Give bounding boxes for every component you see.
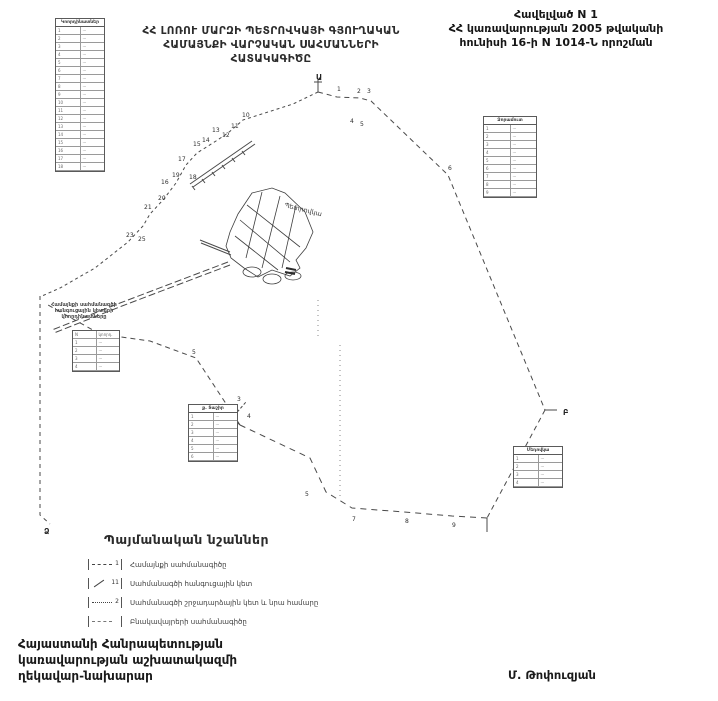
mini-table-row: 6··· bbox=[484, 165, 536, 173]
mini-table-cell: ··· bbox=[539, 471, 563, 478]
mini-table-cell: 18 bbox=[56, 163, 81, 170]
junction-letter: Բ bbox=[563, 408, 568, 417]
mini-table-cell: ··· bbox=[97, 347, 120, 354]
mini-table-cell: ··· bbox=[81, 131, 105, 138]
mini-table-cell: ··· bbox=[81, 59, 105, 66]
mini-table-row: 8··· bbox=[484, 181, 536, 189]
mini-table-cell: 3 bbox=[73, 355, 97, 362]
mini-table-cell: 3 bbox=[189, 429, 214, 436]
mini-table-row: 2··· bbox=[189, 421, 237, 429]
mini-table-row: 3··· bbox=[189, 429, 237, 437]
footer-line1: Հայաստանի Հանրապետության bbox=[18, 636, 237, 652]
mini-table-row: 1··· bbox=[56, 27, 104, 35]
mini-table-cell: 14 bbox=[56, 131, 81, 138]
mini-table-cell: 4 bbox=[189, 437, 214, 444]
coordinates-table-tashir: ք. Տաշիր1···2···3···4···5···6··· bbox=[188, 404, 238, 462]
mini-table-cell: 7 bbox=[484, 173, 511, 180]
mini-table-row: 4··· bbox=[514, 479, 562, 487]
legend-item: Բնակավայրերի սահմանագիծը bbox=[88, 615, 247, 628]
mini-table-cell: ··· bbox=[97, 355, 120, 362]
mini-table-cell: ··· bbox=[81, 83, 105, 90]
mini-table-row: 5··· bbox=[484, 157, 536, 165]
mini-table-cell: ··· bbox=[81, 123, 105, 130]
mini-table-cell: ··· bbox=[511, 165, 537, 172]
caption-line3: կոորդինատները bbox=[42, 314, 126, 320]
settlement-area bbox=[226, 188, 313, 284]
mini-table-row: 7··· bbox=[484, 173, 536, 181]
junction-letter: Ա bbox=[316, 73, 322, 82]
legend-item: 11Սահմանագծի հանգուցային կետ bbox=[88, 577, 252, 590]
mini-table-cell: 5 bbox=[189, 445, 214, 452]
mini-table-cell: ··· bbox=[81, 91, 105, 98]
signature: Մ. Թոփուզյան bbox=[508, 668, 596, 682]
mini-table-cell: 2 bbox=[56, 35, 81, 42]
mini-table-row: 6··· bbox=[56, 67, 104, 75]
boundary-point-number: 21 bbox=[144, 204, 152, 211]
boundary-point-number: 19 bbox=[172, 172, 180, 179]
mini-table-cell: 5 bbox=[484, 157, 511, 164]
mini-table-cell: ··· bbox=[539, 455, 563, 462]
mini-table-row: 1··· bbox=[73, 339, 119, 347]
mini-table-row: 17··· bbox=[56, 155, 104, 163]
mini-table-cell: 3 bbox=[484, 141, 511, 148]
mini-table-row: 14··· bbox=[56, 131, 104, 139]
mini-table-cell: 1 bbox=[56, 27, 81, 34]
boundary-point-number: 15 bbox=[193, 141, 201, 148]
boundary-point-number: 16 bbox=[161, 179, 169, 186]
boundary-point-number: 3 bbox=[367, 88, 371, 95]
mini-table-cell: ··· bbox=[511, 189, 537, 196]
boundary-point-number: 1 bbox=[337, 86, 341, 93]
mini-table-row: 4··· bbox=[484, 149, 536, 157]
mini-table-cell: 11 bbox=[56, 107, 81, 114]
mini-table-row: 1··· bbox=[484, 125, 536, 133]
mini-table-cell: ··· bbox=[511, 181, 537, 188]
scanned-map-page: 1234567895101112131415171819162021232523… bbox=[0, 0, 718, 701]
mini-table-cell: ··· bbox=[81, 147, 105, 154]
mini-table-title: Կոորդինատներ bbox=[56, 19, 104, 27]
junction-letter: Ձ bbox=[44, 527, 49, 536]
coordinates-caption: Համայնքի սահմանագծի հանգուցային կետերի կ… bbox=[42, 302, 126, 320]
mini-table-cell: ··· bbox=[511, 133, 537, 140]
mini-table-cell: ··· bbox=[81, 43, 105, 50]
legend-item-label: Սահմանագծի հանգուցային կետ bbox=[130, 580, 252, 588]
mini-table-cell: ··· bbox=[511, 141, 537, 148]
mini-table-cell: 7 bbox=[56, 75, 81, 82]
legend-symbol-icon: 2 bbox=[88, 597, 122, 608]
boundary-point-number: 6 bbox=[448, 165, 452, 172]
boundary-point-number: 5 bbox=[305, 491, 309, 498]
page-title: ՀՀ ԼՈՌՈՒ ՄԱՐԶԻ ՊԵՏՐՈՎԿԱՅԻ ԳՅՈՒՂԱԿԱՆ ՀԱՄԱ… bbox=[118, 24, 424, 66]
mini-table-row: 4··· bbox=[56, 51, 104, 59]
mini-table-cell: 2 bbox=[514, 463, 539, 470]
mini-table-cell: 13 bbox=[56, 123, 81, 130]
mini-table-cell: 16 bbox=[56, 147, 81, 154]
appendix-line1: Հավելված N 1 bbox=[398, 8, 714, 22]
mini-table-cell: ··· bbox=[81, 67, 105, 74]
signer-block: Հայաստանի Հանրապետության կառավարության ա… bbox=[18, 636, 237, 684]
legend-title: Պայմանական նշաններ bbox=[104, 532, 269, 547]
mini-table-cell: 4 bbox=[73, 363, 97, 370]
mini-table-cell: ··· bbox=[511, 157, 537, 164]
mini-table-cell: ··· bbox=[81, 163, 105, 170]
mini-table-row: 9··· bbox=[56, 91, 104, 99]
boundary-point-number: 2 bbox=[357, 88, 361, 95]
mini-table-row: 7··· bbox=[56, 75, 104, 83]
mini-table-row: 16··· bbox=[56, 147, 104, 155]
mini-table-cell: ··· bbox=[511, 173, 537, 180]
mini-table-row: 4··· bbox=[189, 437, 237, 445]
legend-item: 1Համայնքի սահմանագիծը bbox=[88, 558, 227, 571]
mini-table-title: Մեդովկա bbox=[514, 447, 562, 455]
mini-table-row: 3··· bbox=[514, 471, 562, 479]
mini-table-cell: 1 bbox=[73, 339, 97, 346]
boundary-point-number: 8 bbox=[405, 518, 409, 525]
mini-table-cell: 4 bbox=[484, 149, 511, 156]
mini-table-cell: 3 bbox=[56, 43, 81, 50]
boundary-point-number: 3 bbox=[237, 396, 241, 403]
mini-table-cell: ··· bbox=[81, 75, 105, 82]
boundary-point-number: 5 bbox=[360, 121, 364, 128]
boundary-point-number: 9 bbox=[452, 522, 456, 529]
mini-table-row: Nկոորդ. bbox=[73, 331, 119, 339]
boundary-point-number: 12 bbox=[222, 132, 230, 139]
mini-table-cell: 1 bbox=[189, 413, 214, 420]
mini-table-row: 18··· bbox=[56, 163, 104, 171]
mini-table-cell: ··· bbox=[214, 429, 238, 436]
legend-symbol-icon: 11 bbox=[88, 578, 122, 589]
mini-table-cell: ··· bbox=[97, 363, 120, 370]
mini-table-row: 4··· bbox=[73, 363, 119, 371]
mini-table-title: ք. Տաշիր bbox=[189, 405, 237, 413]
appendix-note: Հավելված N 1 ՀՀ կառավարության 2005 թվակա… bbox=[398, 8, 714, 50]
settlement-label: Պետրովկա bbox=[284, 201, 323, 218]
mini-table-cell: 2 bbox=[189, 421, 214, 428]
coordinates-table-medovka: Մեդովկա1···2···3···4··· bbox=[513, 446, 563, 488]
boundary-point-number: 11 bbox=[231, 123, 239, 130]
mini-table-cell: 2 bbox=[484, 133, 511, 140]
footer-line3: ղեկավար-նախարար bbox=[18, 668, 237, 684]
legend-symbol-number: 2 bbox=[115, 598, 119, 605]
boundary-point-number: 25 bbox=[138, 236, 146, 243]
title-line3: ՀԱՏԱԿԱԳԻԾԸ bbox=[118, 52, 424, 66]
mini-table-cell: ··· bbox=[214, 453, 238, 460]
legend-symbol-icon bbox=[88, 616, 122, 627]
boundary-point-number: 20 bbox=[158, 195, 166, 202]
mini-table-cell: 1 bbox=[514, 455, 539, 462]
coordinates-table-middle: Nկոորդ.1···2···3···4··· bbox=[72, 330, 120, 372]
boundary-point-numbers: 1234567895101112131415171819162021232523… bbox=[126, 86, 456, 529]
mini-table-row: 2··· bbox=[484, 133, 536, 141]
mini-table-row: 2··· bbox=[56, 35, 104, 43]
mini-table-row: 3··· bbox=[56, 43, 104, 51]
mini-table-cell: ··· bbox=[81, 99, 105, 106]
mini-table-cell: 9 bbox=[56, 91, 81, 98]
mini-table-cell: 4 bbox=[514, 479, 539, 486]
mini-table-cell: 9 bbox=[484, 189, 511, 196]
mini-table-cell: 6 bbox=[56, 67, 81, 74]
mini-table-cell: 5 bbox=[56, 59, 81, 66]
mini-table-cell: ··· bbox=[81, 115, 105, 122]
mini-table-row: 8··· bbox=[56, 83, 104, 91]
boundary-point-number: 4 bbox=[350, 118, 354, 125]
boundary-point-number: 13 bbox=[212, 127, 220, 134]
mini-table-cell: ··· bbox=[81, 35, 105, 42]
mini-table-cell: կոորդ. bbox=[97, 331, 120, 338]
mini-table-cell: 17 bbox=[56, 155, 81, 162]
mini-table-row: 2··· bbox=[514, 463, 562, 471]
mini-table-row: 10··· bbox=[56, 99, 104, 107]
mini-table-row: 15··· bbox=[56, 139, 104, 147]
legend-item-label: Սահմանագծի շրջադարձային կետ և նրա համարը bbox=[130, 599, 318, 607]
title-line2: ՀԱՄԱՅՆՔԻ ՎԱՐՉԱԿԱՆ ՍԱՀՄԱՆՆԵՐԻ bbox=[118, 38, 424, 52]
mini-table-row: 6··· bbox=[189, 453, 237, 461]
mini-table-cell: 4 bbox=[56, 51, 81, 58]
legend-symbol-icon: 1 bbox=[88, 559, 122, 570]
boundary-point-number: 10 bbox=[242, 112, 250, 119]
footer-line2: կառավարության աշխատակազմի bbox=[18, 652, 237, 668]
mini-table-cell: ··· bbox=[214, 413, 238, 420]
boundary-point-number: 23 bbox=[126, 232, 134, 239]
mini-table-title: Ձորամուտ bbox=[484, 117, 536, 125]
legend-item-label: Համայնքի սահմանագիծը bbox=[130, 561, 227, 569]
mini-table-cell: ··· bbox=[81, 107, 105, 114]
mini-table-cell: ··· bbox=[539, 479, 563, 486]
mini-table-cell: 6 bbox=[484, 165, 511, 172]
mini-table-cell: ··· bbox=[214, 445, 238, 452]
mini-table-row: 5··· bbox=[56, 59, 104, 67]
mini-table-row: 5··· bbox=[189, 445, 237, 453]
mini-table-row: 1··· bbox=[189, 413, 237, 421]
legend-item-label: Բնակավայրերի սահմանագիծը bbox=[130, 618, 247, 626]
mini-table-cell: 1 bbox=[484, 125, 511, 132]
mini-table-cell: 15 bbox=[56, 139, 81, 146]
mini-table-cell: 8 bbox=[56, 83, 81, 90]
mini-table-row: 11··· bbox=[56, 107, 104, 115]
mini-table-cell: 6 bbox=[189, 453, 214, 460]
boundary-point-number: 18 bbox=[189, 174, 197, 181]
mini-table-row: 3··· bbox=[73, 355, 119, 363]
title-line1: ՀՀ ԼՈՌՈՒ ՄԱՐԶԻ ՊԵՏՐՈՎԿԱՅԻ ԳՅՈՒՂԱԿԱՆ bbox=[118, 24, 424, 38]
mini-table-cell: 2 bbox=[73, 347, 97, 354]
boundary-point-number: 14 bbox=[202, 137, 210, 144]
boundary-point-number: 7 bbox=[352, 516, 356, 523]
mini-table-cell: ··· bbox=[539, 463, 563, 470]
mini-table-cell: 10 bbox=[56, 99, 81, 106]
boundary-point-number: 17 bbox=[178, 156, 186, 163]
mini-table-row: 9··· bbox=[484, 189, 536, 197]
mini-table-cell: ··· bbox=[214, 421, 238, 428]
mini-table-cell: ··· bbox=[97, 339, 120, 346]
mini-table-row: 3··· bbox=[484, 141, 536, 149]
coordinates-table-right: Ձորամուտ1···2···3···4···5···6···7···8···… bbox=[483, 116, 537, 198]
mini-table-cell: ··· bbox=[81, 139, 105, 146]
mini-table-cell: 8 bbox=[484, 181, 511, 188]
mini-table-cell: ··· bbox=[511, 149, 537, 156]
legend-symbol-number: 11 bbox=[111, 579, 119, 586]
mini-table-cell: 3 bbox=[514, 471, 539, 478]
boundary-point-number: 4 bbox=[247, 413, 251, 420]
mini-table-cell: ··· bbox=[511, 125, 537, 132]
coordinates-table-left: Կոորդինատներ1···2···3···4···5···6···7···… bbox=[55, 18, 105, 172]
legend-symbol-number: 1 bbox=[115, 560, 119, 567]
mini-table-cell: ··· bbox=[81, 51, 105, 58]
boundary-point-number: 5 bbox=[192, 349, 196, 356]
legend-item: 2Սահմանագծի շրջադարձային կետ և նրա համար… bbox=[88, 596, 318, 609]
mini-table-cell: ··· bbox=[214, 437, 238, 444]
appendix-line3: հունիսի 16-ի N 1014-Ն որոշման bbox=[398, 36, 714, 50]
mini-table-cell: 12 bbox=[56, 115, 81, 122]
mini-table-row: 1··· bbox=[514, 455, 562, 463]
mini-table-row: 2··· bbox=[73, 347, 119, 355]
mini-table-cell: N bbox=[73, 331, 97, 338]
mini-table-cell: ··· bbox=[81, 27, 105, 34]
mini-table-cell: ··· bbox=[81, 155, 105, 162]
mini-table-row: 13··· bbox=[56, 123, 104, 131]
appendix-line2: ՀՀ կառավարության 2005 թվականի bbox=[398, 22, 714, 36]
mini-table-row: 12··· bbox=[56, 115, 104, 123]
